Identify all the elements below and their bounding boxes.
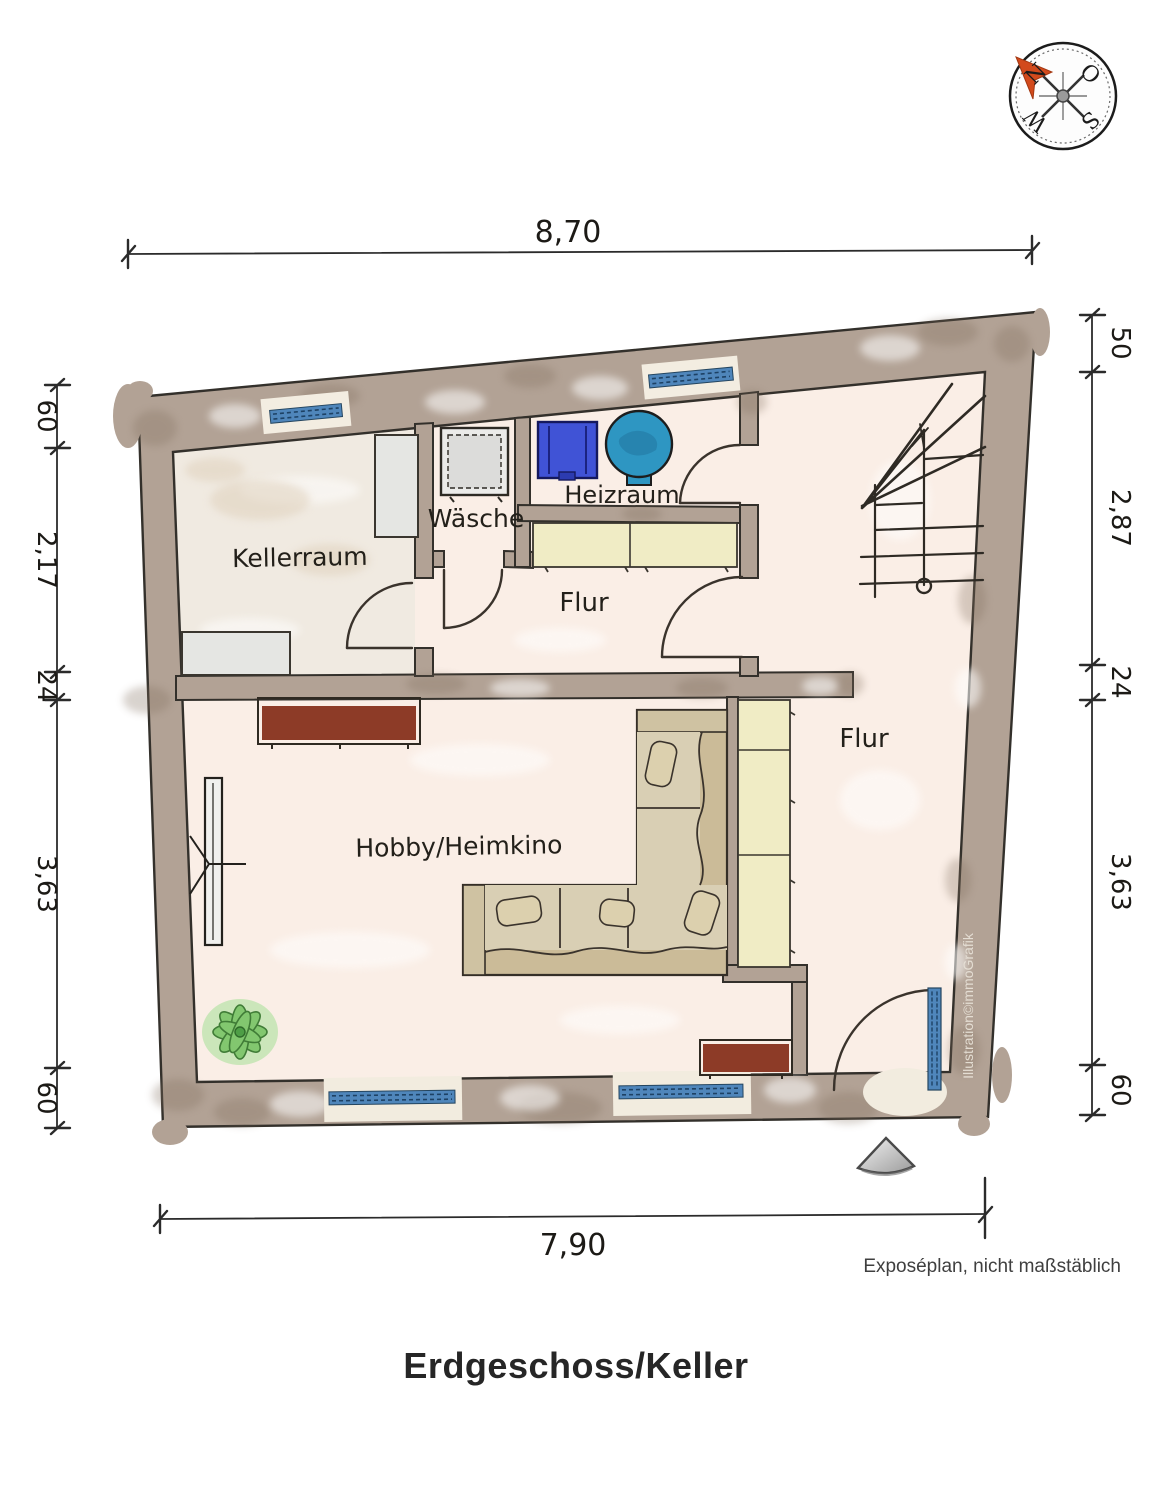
page-title: Erdgeschoss/Keller	[403, 1345, 748, 1386]
dim-label-bottom: 7,90	[540, 1228, 607, 1263]
room-label-flur-upper: Flur	[559, 588, 609, 618]
cabinet-upper-flur	[533, 523, 737, 572]
dim-label-right-2: 24	[1105, 665, 1135, 698]
footnote: Exposéplan, nicht maßstäblich	[863, 1256, 1121, 1277]
closet-lower-flur	[738, 700, 795, 967]
dim-label-left-1: 2,17	[31, 531, 61, 589]
window-bottom-right	[613, 1070, 752, 1116]
dim-label-right-3: 3,63	[1105, 853, 1135, 911]
dimension-right	[1080, 309, 1105, 1121]
room-label-hobby: Hobby/Heimkino	[355, 830, 563, 863]
entrance-door-panel	[928, 988, 941, 1090]
floorplan-page: N O S W	[0, 0, 1151, 1500]
room-label-heizraum: Heizraum	[564, 481, 679, 509]
dim-label-left-3: 3,63	[31, 855, 61, 913]
washing-machine	[441, 428, 508, 502]
shelf-kellerraum-bottom	[182, 632, 290, 675]
plant	[202, 999, 278, 1065]
compass-rose: N O S W	[1010, 43, 1116, 149]
dim-label-right-1: 2,87	[1105, 489, 1135, 547]
room-label-waesche: Wäsche	[428, 504, 524, 533]
dimension-left	[45, 379, 70, 1134]
dim-label-left-2: 24	[31, 669, 61, 702]
heating-appliance	[538, 422, 597, 480]
dim-label-left-4: 60	[31, 1081, 61, 1114]
room-label-flur-lower: Flur	[839, 724, 889, 754]
window-bottom-left	[324, 1076, 463, 1122]
room-label-kellerraum: Kellerraum	[232, 542, 368, 573]
dim-label-right-0: 50	[1105, 326, 1135, 359]
dim-label-left-0: 60	[31, 399, 61, 432]
dim-label-top: 8,70	[535, 215, 602, 250]
dim-label-right-4: 60	[1105, 1073, 1135, 1106]
watermark: Illustration©immoGrafik	[960, 932, 976, 1079]
entrance-marker-icon	[858, 1138, 914, 1175]
shelf-kellerraum-right	[375, 435, 418, 537]
